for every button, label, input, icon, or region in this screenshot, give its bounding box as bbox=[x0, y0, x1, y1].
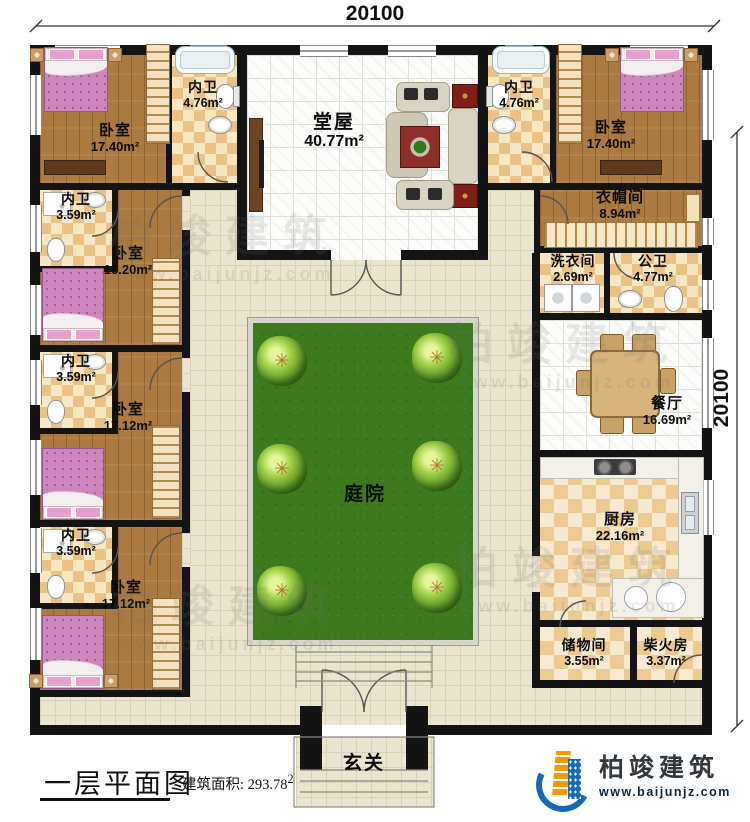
wardrobe bbox=[152, 598, 180, 690]
window bbox=[30, 440, 42, 495]
clothes-rack bbox=[544, 222, 698, 248]
title-underline bbox=[40, 798, 170, 801]
room-label-bedroom-tr: 卧室17.40m² bbox=[558, 120, 664, 151]
wall-segment bbox=[478, 45, 488, 260]
window bbox=[30, 608, 42, 660]
sink bbox=[492, 116, 516, 134]
nightstand bbox=[29, 674, 43, 688]
wall-segment bbox=[540, 450, 702, 457]
dining-chair bbox=[600, 416, 624, 434]
tree bbox=[257, 336, 307, 386]
room-label-dining: 餐厅16.69m² bbox=[628, 396, 706, 427]
wall-segment bbox=[534, 190, 540, 246]
tree bbox=[412, 333, 462, 383]
bathtub bbox=[492, 46, 550, 74]
wall-segment bbox=[30, 725, 322, 735]
door-opening bbox=[532, 556, 540, 592]
bed bbox=[42, 615, 104, 689]
tree bbox=[412, 563, 462, 613]
room-label-bath-tl: 内卫4.76m² bbox=[170, 80, 236, 110]
kitchen-sink bbox=[681, 492, 699, 534]
wardrobe bbox=[152, 425, 180, 519]
sink bbox=[618, 290, 642, 308]
wall-segment bbox=[247, 250, 331, 260]
bed bbox=[44, 47, 108, 112]
sofa-cushion bbox=[404, 88, 418, 100]
room-label-bedroom-l3: 卧室17.12m² bbox=[74, 402, 182, 433]
room-label-bedroom-l4: 卧室17.12m² bbox=[72, 580, 180, 611]
door-opening bbox=[182, 358, 190, 392]
bed bbox=[42, 268, 104, 342]
window bbox=[30, 285, 42, 335]
room-label-courtyard: 庭院 bbox=[331, 484, 399, 505]
company-website: www.baijunjz.com bbox=[599, 785, 731, 799]
plan-title: 一层平面图 bbox=[44, 762, 194, 801]
toilet bbox=[47, 238, 65, 262]
wall-segment bbox=[401, 250, 478, 260]
sink bbox=[208, 116, 232, 134]
wall-segment bbox=[40, 345, 182, 352]
side-table bbox=[452, 84, 478, 108]
nightstand bbox=[30, 48, 44, 62]
window bbox=[702, 218, 714, 245]
bathtub bbox=[175, 46, 235, 74]
sofa-cushion bbox=[428, 188, 442, 200]
dresser bbox=[44, 160, 106, 175]
wall-segment bbox=[182, 190, 190, 697]
toilet bbox=[47, 400, 65, 424]
sofa bbox=[448, 108, 478, 184]
room-label-storage: 储物间3.55m² bbox=[540, 638, 628, 668]
wall-segment bbox=[540, 313, 702, 320]
door-opening bbox=[182, 196, 190, 230]
dining-chair bbox=[660, 368, 676, 394]
window bbox=[388, 45, 436, 57]
sofa-cushion bbox=[424, 88, 438, 100]
entrance-column bbox=[406, 706, 428, 770]
toilet bbox=[47, 575, 65, 599]
dresser bbox=[600, 160, 662, 175]
tree bbox=[257, 444, 307, 494]
room-label-bath-l3: 内卫3.59m² bbox=[38, 354, 114, 384]
window bbox=[702, 280, 714, 310]
bed bbox=[42, 448, 104, 520]
room-label-kitchen: 厨房22.16m² bbox=[578, 512, 662, 543]
wall-segment bbox=[40, 520, 182, 527]
tree bbox=[257, 566, 307, 616]
room-label-laundry: 洗衣间2.69m² bbox=[536, 254, 610, 284]
window bbox=[702, 70, 714, 140]
room-label-public-bath: 公卫4.77m² bbox=[616, 254, 690, 284]
sofa bbox=[396, 180, 454, 210]
company-name: 柏竣建筑 bbox=[599, 756, 731, 781]
room-label-bedroom-tl: 卧室17.40m² bbox=[63, 123, 167, 154]
wall-segment bbox=[540, 620, 702, 627]
company-logo-icon bbox=[538, 748, 590, 806]
room-label-tangwu: 堂屋40.77m² bbox=[282, 112, 386, 151]
bed bbox=[620, 47, 684, 112]
entrance-column bbox=[300, 706, 322, 770]
nightstand bbox=[108, 48, 122, 62]
wall-segment bbox=[406, 725, 712, 735]
dimension-top: 20100 bbox=[340, 2, 410, 26]
wall-segment bbox=[40, 183, 237, 190]
wall-segment bbox=[237, 45, 247, 260]
logo-building-blue bbox=[568, 759, 581, 799]
wall-segment bbox=[532, 253, 540, 688]
nightstand bbox=[684, 48, 698, 62]
nightstand bbox=[104, 674, 118, 688]
wall-segment bbox=[488, 183, 702, 190]
room-label-entrance: 玄关 bbox=[328, 753, 400, 774]
window bbox=[300, 45, 348, 57]
wall-segment bbox=[540, 680, 702, 688]
toilet bbox=[664, 286, 683, 312]
side-table bbox=[452, 184, 478, 208]
coffee-table bbox=[400, 126, 440, 168]
washing-machine bbox=[544, 284, 572, 312]
basin bbox=[624, 586, 648, 610]
room-label-bath-l4: 内卫3.59m² bbox=[38, 528, 114, 558]
dimension-right: 20100 bbox=[710, 368, 734, 428]
sofa-cushion bbox=[406, 188, 420, 200]
room-label-firewood: 柴火房3.37m² bbox=[628, 638, 704, 668]
room-label-bath-tr: 内卫4.76m² bbox=[486, 80, 552, 110]
room-label-bath-l2: 内卫3.59m² bbox=[38, 192, 114, 222]
tree bbox=[412, 441, 462, 491]
nightstand bbox=[605, 48, 619, 62]
basin bbox=[656, 582, 686, 612]
room-label-cloakroom: 衣帽间8.94m² bbox=[578, 190, 662, 221]
room-label-bedroom-l2: 卧室16.20m² bbox=[74, 246, 182, 277]
built-area-note: 建筑面积: 293.782 bbox=[182, 772, 294, 794]
wall-segment bbox=[550, 55, 556, 183]
company-logo-text: 柏竣建筑 www.baijunjz.com bbox=[599, 756, 731, 799]
window bbox=[30, 75, 42, 135]
dressing-bench bbox=[686, 194, 700, 222]
door-opening bbox=[182, 533, 190, 567]
wall-segment bbox=[40, 690, 190, 697]
tv bbox=[259, 140, 264, 188]
washing-machine bbox=[572, 284, 600, 312]
company-logo: 柏竣建筑 www.baijunjz.com bbox=[538, 748, 731, 806]
floor-plan: 卧室17.40m² 内卫4.76m² 内卫3.59m² 卧室16.20m² 内卫… bbox=[0, 0, 750, 822]
stove bbox=[594, 459, 636, 475]
